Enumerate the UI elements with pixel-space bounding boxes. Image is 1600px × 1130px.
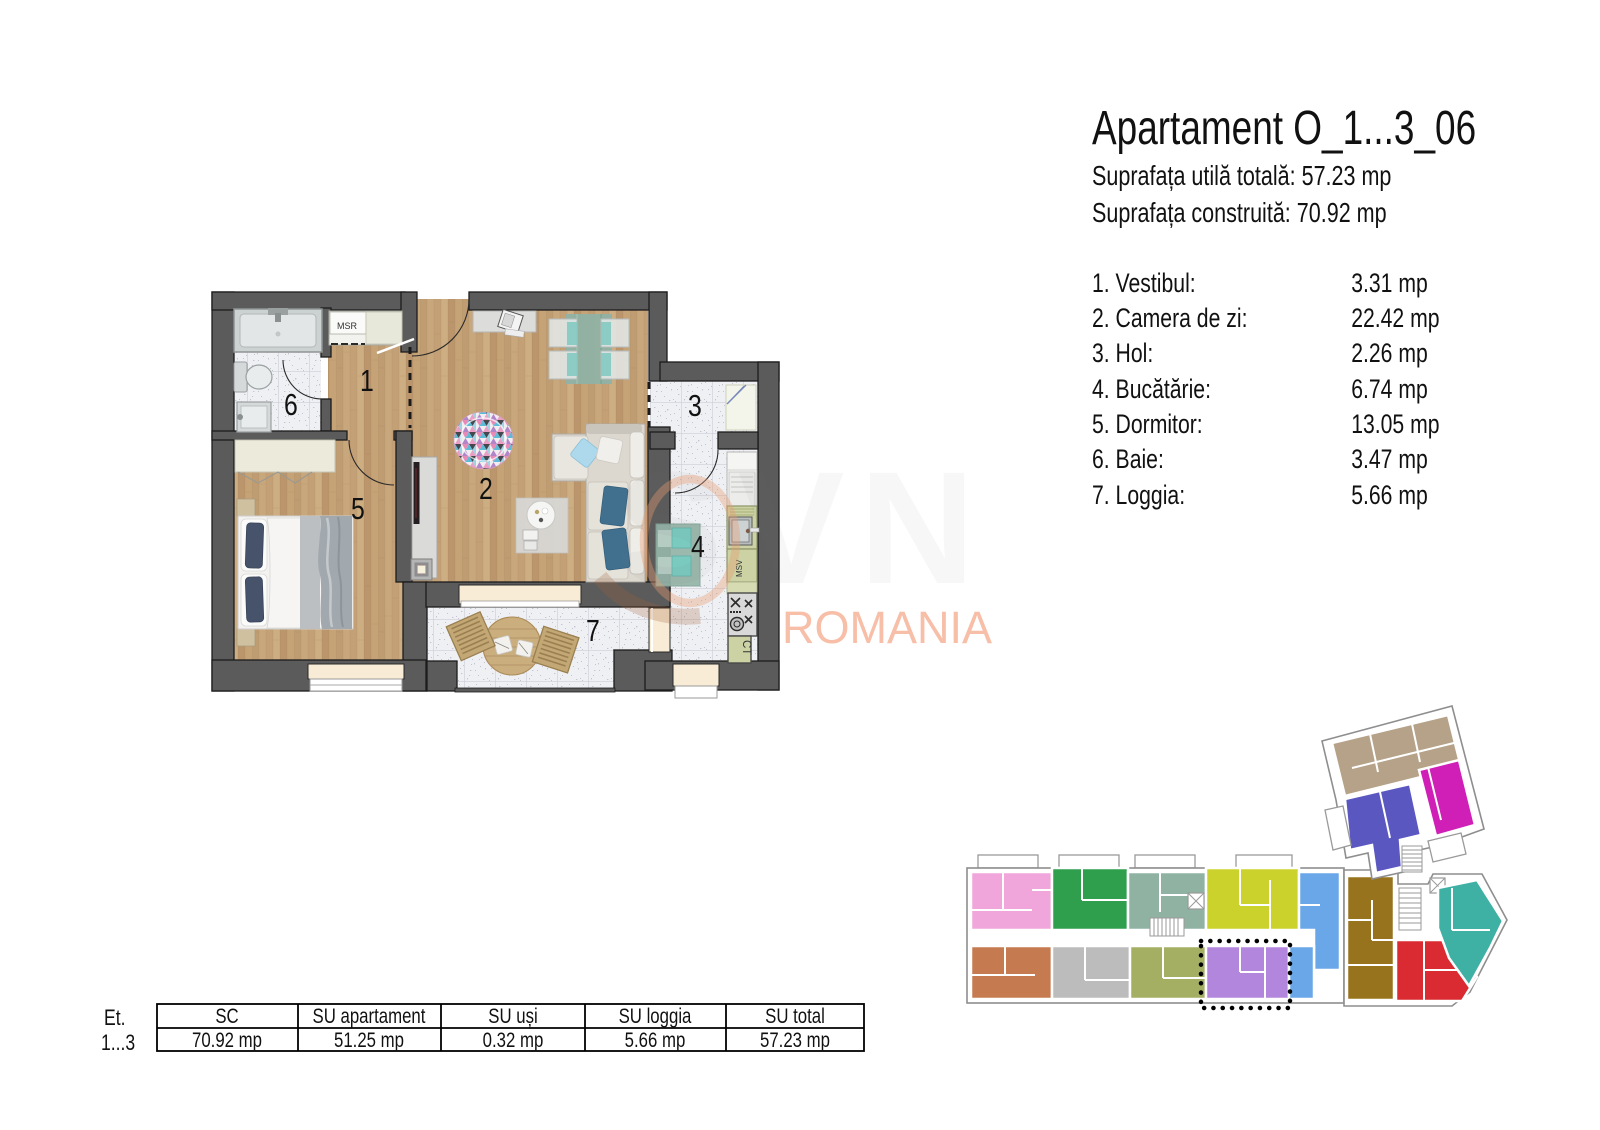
svg-text:70.92 mp: 70.92 mp bbox=[192, 1029, 262, 1052]
svg-text:6. Baie:: 6. Baie: bbox=[1092, 445, 1164, 475]
svg-text:2. Camera de zi:: 2. Camera de zi: bbox=[1092, 304, 1247, 334]
svg-text:SU uși: SU uși bbox=[488, 1005, 537, 1028]
svg-text:2: 2 bbox=[479, 471, 493, 505]
svg-text:22.42 mp: 22.42 mp bbox=[1351, 304, 1439, 334]
svg-text:3: 3 bbox=[688, 388, 702, 422]
svg-text:51.25 mp: 51.25 mp bbox=[334, 1029, 404, 1052]
svg-text:Suprafața construită: 70.92 mp: Suprafața construită: 70.92 mp bbox=[1092, 197, 1387, 228]
svg-text:SU total: SU total bbox=[765, 1005, 825, 1028]
svg-text:2.26 mp: 2.26 mp bbox=[1351, 339, 1428, 369]
svg-text:SC: SC bbox=[215, 1005, 238, 1028]
svg-text:CT: CT bbox=[740, 640, 752, 655]
svg-text:SU loggia: SU loggia bbox=[619, 1005, 692, 1028]
svg-text:5. Dormitor:: 5. Dormitor: bbox=[1092, 410, 1203, 440]
svg-text:57.23 mp: 57.23 mp bbox=[760, 1029, 830, 1052]
svg-text:0.32 mp: 0.32 mp bbox=[483, 1029, 544, 1052]
svg-text:6.74 mp: 6.74 mp bbox=[1351, 375, 1428, 405]
svg-text:7: 7 bbox=[586, 613, 600, 647]
svg-text:3. Hol:: 3. Hol: bbox=[1092, 339, 1153, 369]
svg-text:ROMANIA: ROMANIA bbox=[782, 602, 992, 653]
svg-text:13.05 mp: 13.05 mp bbox=[1351, 410, 1439, 440]
svg-text:1: 1 bbox=[360, 363, 374, 397]
svg-text:5.66 mp: 5.66 mp bbox=[1351, 481, 1428, 511]
svg-text:4. Bucătărie:: 4. Bucătărie: bbox=[1092, 375, 1211, 405]
svg-text:7. Loggia:: 7. Loggia: bbox=[1092, 481, 1185, 511]
svg-text:6: 6 bbox=[284, 387, 298, 421]
svg-text:5.66 mp: 5.66 mp bbox=[625, 1029, 686, 1052]
svg-text:Suprafața utilă totală: 57.23: Suprafața utilă totală: 57.23 mp bbox=[1092, 160, 1391, 191]
svg-text:SU apartament: SU apartament bbox=[313, 1005, 427, 1028]
svg-text:Apartament O_1...3_06: Apartament O_1...3_06 bbox=[1092, 101, 1476, 155]
svg-text:1...3: 1...3 bbox=[101, 1031, 135, 1055]
svg-text:1. Vestibul:: 1. Vestibul: bbox=[1092, 269, 1196, 299]
svg-text:3.47 mp: 3.47 mp bbox=[1351, 445, 1428, 475]
svg-text:5: 5 bbox=[351, 491, 365, 525]
svg-text:SVN: SVN bbox=[616, 438, 990, 617]
svg-text:Et.: Et. bbox=[104, 1006, 126, 1030]
svg-text:MSR: MSR bbox=[337, 321, 358, 331]
svg-text:3.31 mp: 3.31 mp bbox=[1351, 269, 1428, 299]
